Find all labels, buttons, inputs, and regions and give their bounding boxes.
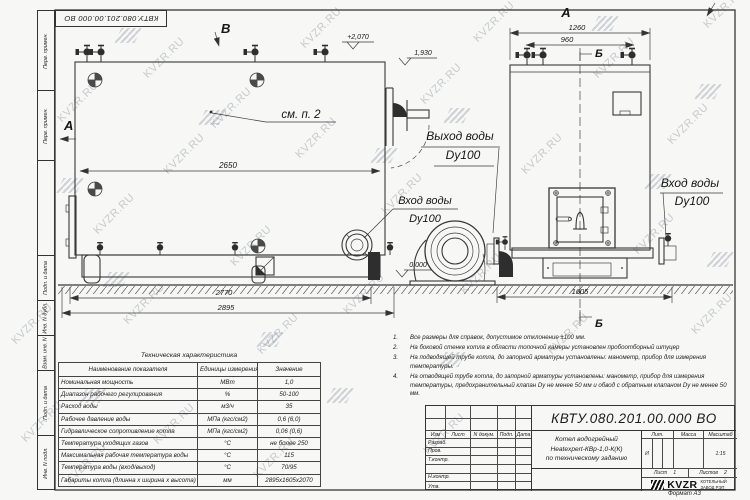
section-b-top: Б — [595, 48, 603, 60]
outlet-label-2: Dy100 — [446, 148, 481, 162]
elevation-zero: 0.000 — [409, 262, 427, 269]
dim-2650: 2650 — [218, 161, 237, 170]
side-cell: Инв. N дубл. — [38, 301, 54, 336]
view-mark-a: А — [63, 118, 73, 133]
outlet-label-1: Выход воды — [426, 129, 494, 143]
kvzr-logo-text: KVZR — [667, 479, 697, 491]
section-marks: А В А Б Б — [60, 3, 715, 330]
tech-table-title: Техническая характеристика — [58, 352, 320, 359]
tech-row: Рабочее давление водыМПа (кгс/см2)0,6 (6… — [59, 413, 321, 425]
side-cell: Подп. и дата — [38, 256, 54, 301]
ground — [58, 285, 733, 294]
mass-value — [674, 439, 704, 469]
title-empty-cell — [531, 469, 641, 491]
doc-number: КВТУ.080.201.00.000 ВО — [531, 406, 736, 431]
tech-table: Наименование показателя Единицы измерени… — [58, 362, 321, 487]
see-note-label: см. п. 2 — [281, 109, 321, 121]
dim-1260: 1260 — [569, 23, 587, 32]
elevation-marks: +2,070 1,930 0.000 — [342, 34, 437, 277]
elevation-top: +2,070 — [347, 34, 369, 41]
water-inlet-connection — [659, 234, 676, 264]
title-block: КВТУ.080.201.00.000 ВО Изм Лист N докум.… — [425, 405, 735, 490]
kvzr-logo-icon — [651, 480, 664, 490]
side-cell: Перв. примен. — [38, 91, 54, 161]
frame-side-column: Перв. примен. Перв. примен. Подп. и дата… — [37, 10, 55, 490]
format-label: Формат А3 — [668, 491, 701, 497]
side-cell: Инв. N подл. — [38, 436, 54, 489]
water-outlet-connection — [487, 237, 513, 277]
inlet-left-label-1: Вход воды — [398, 195, 451, 207]
revision-grid — [426, 406, 531, 431]
note-item: 4.На отводящей трубе котла, до запорной … — [393, 373, 735, 399]
front-base — [512, 248, 653, 278]
inlet-right-label-1: Вход воды — [661, 176, 719, 190]
dim-2895: 2895 — [217, 303, 236, 312]
side-cell: Взам. инв. N — [38, 336, 54, 371]
tech-row: Температура уходящих газов°Сне более 250 — [59, 437, 321, 449]
tech-row: Номинальная мощностьМВт1,0 — [59, 377, 321, 389]
signature-rows: Разраб. Пров. Т.контр. Н.контр. Утв. — [426, 439, 531, 491]
dim-960: 960 — [561, 35, 574, 44]
revision-header-row: Изм Лист N докум. Подп. Дата — [426, 431, 531, 439]
top-left-stamp: КВТУ.080.201.00.000 ВО — [55, 10, 167, 27]
dim-1605: 1605 — [572, 287, 590, 296]
side-cell: Перв. примен. — [38, 11, 54, 91]
scale-value: 1:15 — [704, 439, 737, 469]
side-cell — [38, 161, 54, 256]
company-name: КОТЕЛЬНЫЙ ЗАВОД РЭП — [700, 479, 726, 490]
tech-row: Максимальная рабочая температура воды°С1… — [59, 450, 321, 462]
fan-blower — [410, 221, 495, 285]
callout-labels: см. п. 2 Вход воды Dy100 Выход воды Dy10… — [210, 109, 723, 238]
furnace-door — [549, 188, 615, 248]
tech-row: Диапазон рабочего регулирования%50-100 — [59, 389, 321, 401]
section-b-bottom: Б — [595, 318, 603, 330]
sheet-row: Лист1 Листов2 — [641, 469, 736, 478]
flue-connection — [386, 88, 429, 168]
tech-row: Температура воды (вход/выход)°С70/95 — [59, 462, 321, 474]
company-logo-cell: KVZR КОТЕЛЬНЫЙ ЗАВОД РЭП — [641, 478, 736, 491]
tech-row: Гидравлическое сопротивление котлаМПа (к… — [59, 425, 321, 437]
boiler-base — [82, 252, 380, 283]
note-item: 2.На боковой стенке котла в области топо… — [393, 344, 735, 353]
elevation-mid: 1,930 — [414, 50, 432, 57]
boiler-side-view: 2650 — [66, 46, 429, 284]
inlet-left-label-2: Dy100 — [409, 213, 442, 225]
drawing-sheet: KVZR.RU KVZR.RU KVZR.RU KVZR.RU KVZR.RU … — [0, 0, 750, 500]
stamp-number: КВТУ.080.201.00.000 ВО — [64, 14, 159, 23]
lit-mass-scale-headers: Лит. Масса Масштаб — [641, 431, 736, 439]
tech-col-header: Значение — [258, 363, 321, 377]
notes-block: 1.Все размеры для справок, допустимое от… — [393, 334, 735, 400]
tech-col-header: Наименование показателя — [59, 363, 198, 377]
tech-row: Габариты котла (длинна х ширина х высота… — [59, 474, 321, 486]
dim-2770: 2770 — [215, 288, 234, 297]
note-item: 3.На подводящей трубе котла, до запорной… — [393, 354, 735, 371]
tech-col-header: Единицы измерения — [198, 363, 258, 377]
view-label-a: А — [560, 5, 570, 20]
inlet-right-label-2: Dy100 — [675, 194, 710, 208]
side-cell: Подп. и дата — [38, 371, 54, 436]
view-mark-b: В — [221, 21, 230, 36]
tech-row: Расход водым3/ч35 — [59, 401, 321, 413]
lit-mass-scale-values: И 1:15 — [641, 439, 736, 469]
lit-value: И — [642, 439, 653, 469]
doc-title: Котел водогрейный Heatexpert-КВр-1,0-К(К… — [531, 431, 641, 469]
note-item: 1.Все размеры для справок, допустимое от… — [393, 334, 735, 343]
